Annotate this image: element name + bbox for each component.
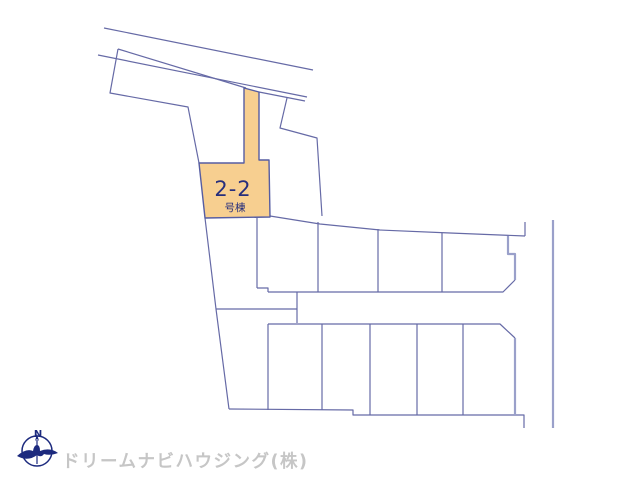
middle-row-notch (257, 288, 268, 292)
top-road-lines (98, 28, 313, 101)
site-plan-page: 2-2 号棟 N ドリームナビハウジング(株) (0, 0, 640, 480)
boundary-left-slant (205, 218, 229, 409)
road-edge-upper (104, 28, 313, 70)
site-plan-canvas: 2-2 号棟 N ドリームナビハウジング(株) (0, 0, 640, 480)
road-edge-lower (98, 55, 307, 97)
bottom-lot-row (268, 324, 515, 415)
corridor-lines (216, 292, 297, 323)
middle-row-bottom (268, 280, 515, 292)
boundary-top-edge (118, 49, 246, 88)
site-top-edge-right (259, 92, 305, 101)
boundary-bottom (229, 409, 524, 428)
middle-row-right-edge (508, 236, 515, 280)
middle-lot-row (257, 216, 525, 292)
company-watermark: ドリームナビハウジング(株) (62, 451, 308, 472)
north-compass-icon: N (17, 429, 58, 466)
middle-row-top (270, 216, 525, 236)
site-boundary (110, 49, 524, 428)
bottom-row-top (268, 324, 515, 338)
lot-suffix-label: 号棟 (225, 201, 246, 214)
neighbor-parcel-boundary (280, 98, 322, 216)
lot-number-label: 2-2 (214, 177, 251, 201)
highlighted-lot-2-2: 2-2 号棟 (199, 88, 270, 218)
